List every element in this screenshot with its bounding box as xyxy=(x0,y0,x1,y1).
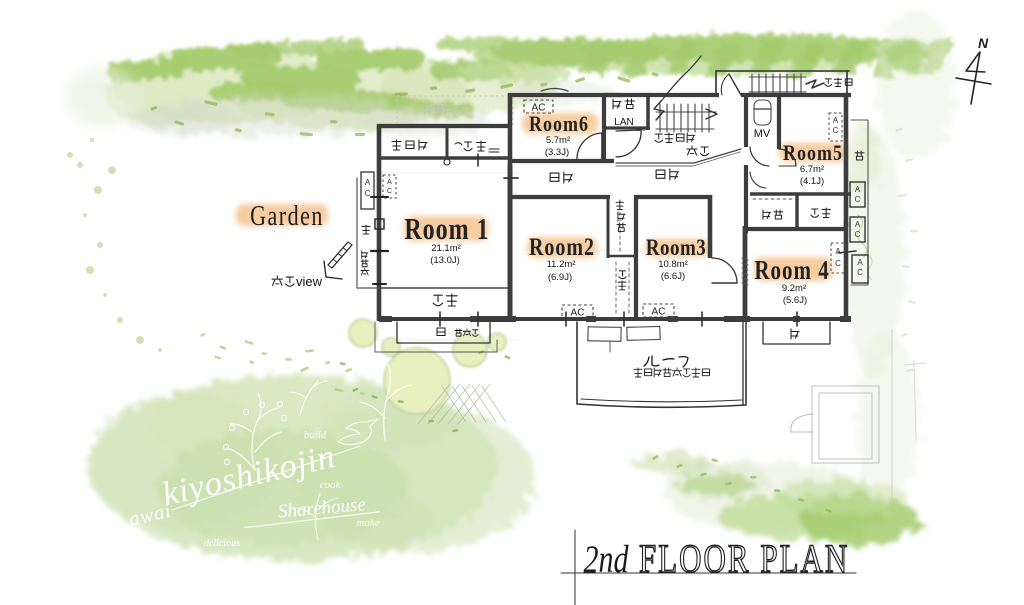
svg-text:C: C xyxy=(855,230,861,239)
svg-text:C: C xyxy=(857,268,863,277)
svg-text:Room3: Room3 xyxy=(646,234,707,260)
svg-text:A: A xyxy=(857,258,863,267)
svg-text:AC: AC xyxy=(571,308,585,319)
svg-text:Room6: Room6 xyxy=(529,112,589,136)
svg-text:A: A xyxy=(835,247,841,256)
svg-text:9.2m²: 9.2m² xyxy=(782,283,806,294)
svg-text:build: build xyxy=(304,429,327,441)
svg-text:A: A xyxy=(365,178,371,187)
svg-text:(6.9J): (6.9J) xyxy=(548,272,572,283)
svg-text:(13.0J): (13.0J) xyxy=(430,255,460,266)
svg-text:etc: etc xyxy=(637,126,646,133)
svg-text:view: view xyxy=(296,274,323,289)
svg-text:5.7m²: 5.7m² xyxy=(546,135,570,146)
svg-text:A: A xyxy=(833,116,839,125)
svg-text:(3.3J): (3.3J) xyxy=(545,147,569,158)
svg-text:A: A xyxy=(387,179,392,186)
svg-text:Room2: Room2 xyxy=(529,233,595,261)
svg-text:C: C xyxy=(855,195,861,204)
svg-text:A: A xyxy=(855,185,861,194)
svg-text:Room 4: Room 4 xyxy=(754,255,829,285)
svg-text:A: A xyxy=(855,220,861,229)
svg-text:(4.1J): (4.1J) xyxy=(800,176,824,187)
svg-text:delicious: delicious xyxy=(204,538,240,549)
svg-text:Room 1: Room 1 xyxy=(404,211,489,246)
svg-text:2nd: 2nd xyxy=(584,537,630,581)
svg-text:C: C xyxy=(365,189,371,198)
svg-text:C: C xyxy=(387,188,392,195)
svg-text:C: C xyxy=(835,259,841,268)
svg-text:AC: AC xyxy=(652,307,666,318)
svg-text:(5.6J): (5.6J) xyxy=(783,295,807,306)
svg-text:Room5: Room5 xyxy=(783,141,843,165)
svg-text:Garden: Garden xyxy=(250,199,324,232)
svg-text:C: C xyxy=(833,126,839,135)
svg-text:6.7m²: 6.7m² xyxy=(800,164,824,175)
svg-text:21.1m²: 21.1m² xyxy=(431,243,461,254)
svg-text:LAN: LAN xyxy=(614,117,633,128)
svg-text:make: make xyxy=(356,517,379,529)
svg-text:MV: MV xyxy=(754,128,771,140)
svg-text:cook: cook xyxy=(320,479,342,491)
svg-text:11.2m²: 11.2m² xyxy=(547,259,576,270)
svg-text:(6.6J): (6.6J) xyxy=(661,271,685,282)
svg-text:FLOOR PLAN: FLOOR PLAN xyxy=(639,536,849,581)
svg-text:10.8m²: 10.8m² xyxy=(658,259,688,270)
svg-text:N: N xyxy=(978,35,989,51)
